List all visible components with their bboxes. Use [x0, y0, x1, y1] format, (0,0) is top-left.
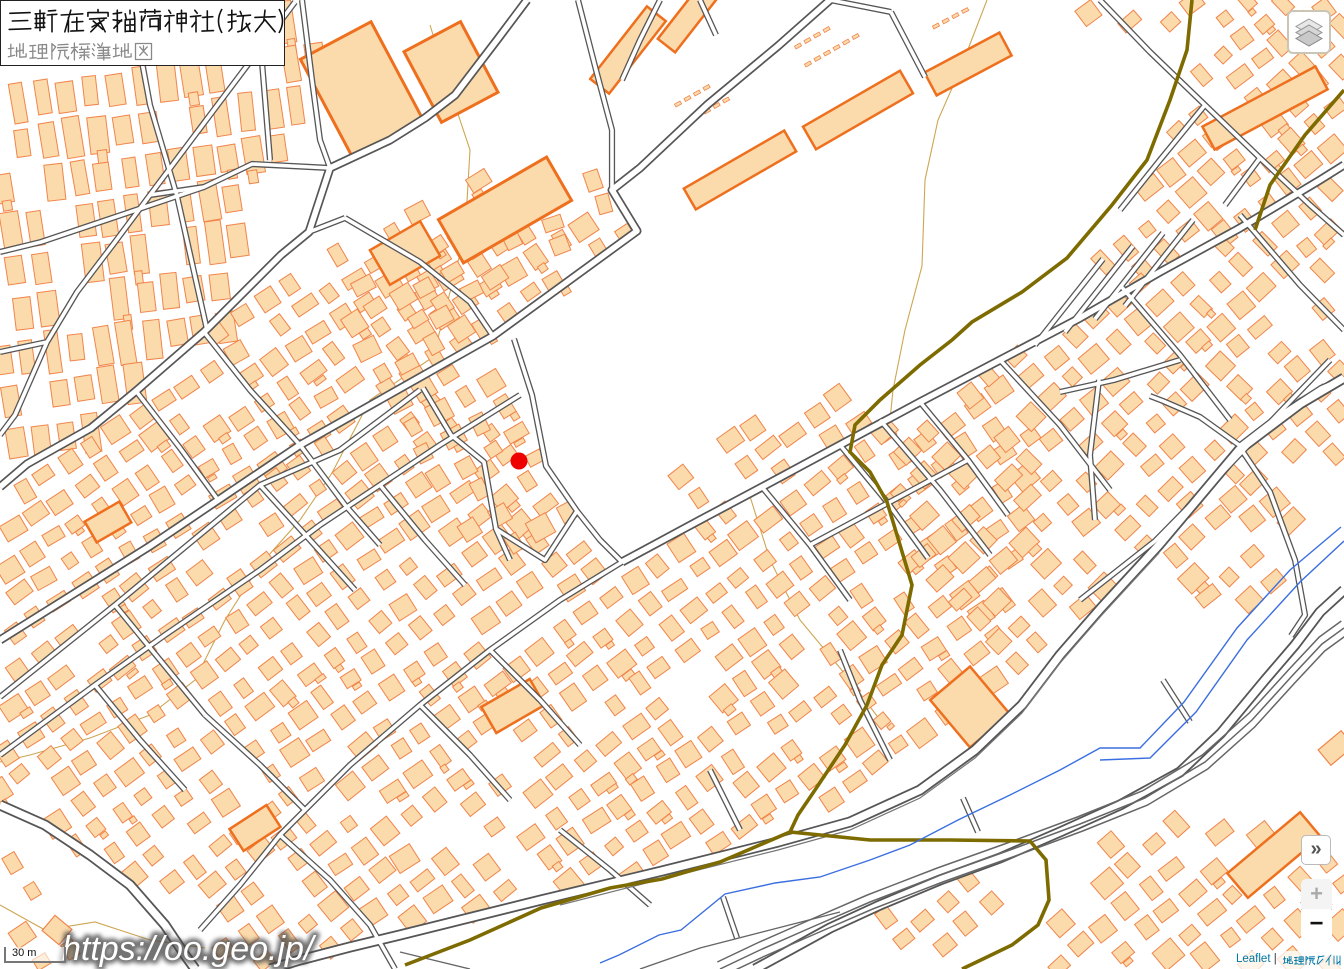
svg-text:https://oo.geo.jp/: https://oo.geo.jp/ — [62, 930, 317, 968]
